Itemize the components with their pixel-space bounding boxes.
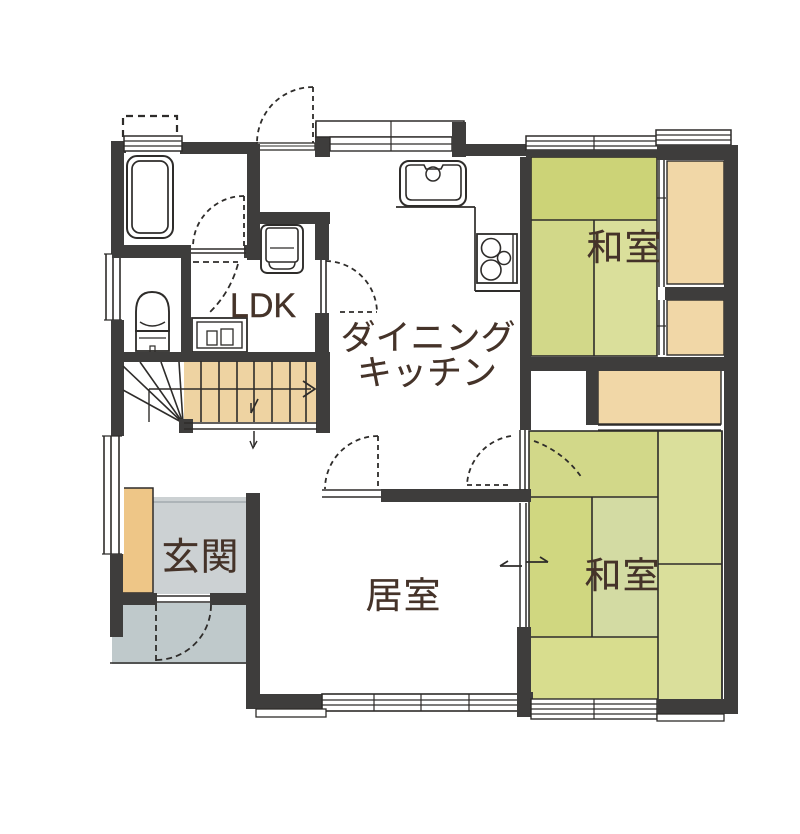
svg-text:LDK: LDK bbox=[230, 287, 296, 325]
